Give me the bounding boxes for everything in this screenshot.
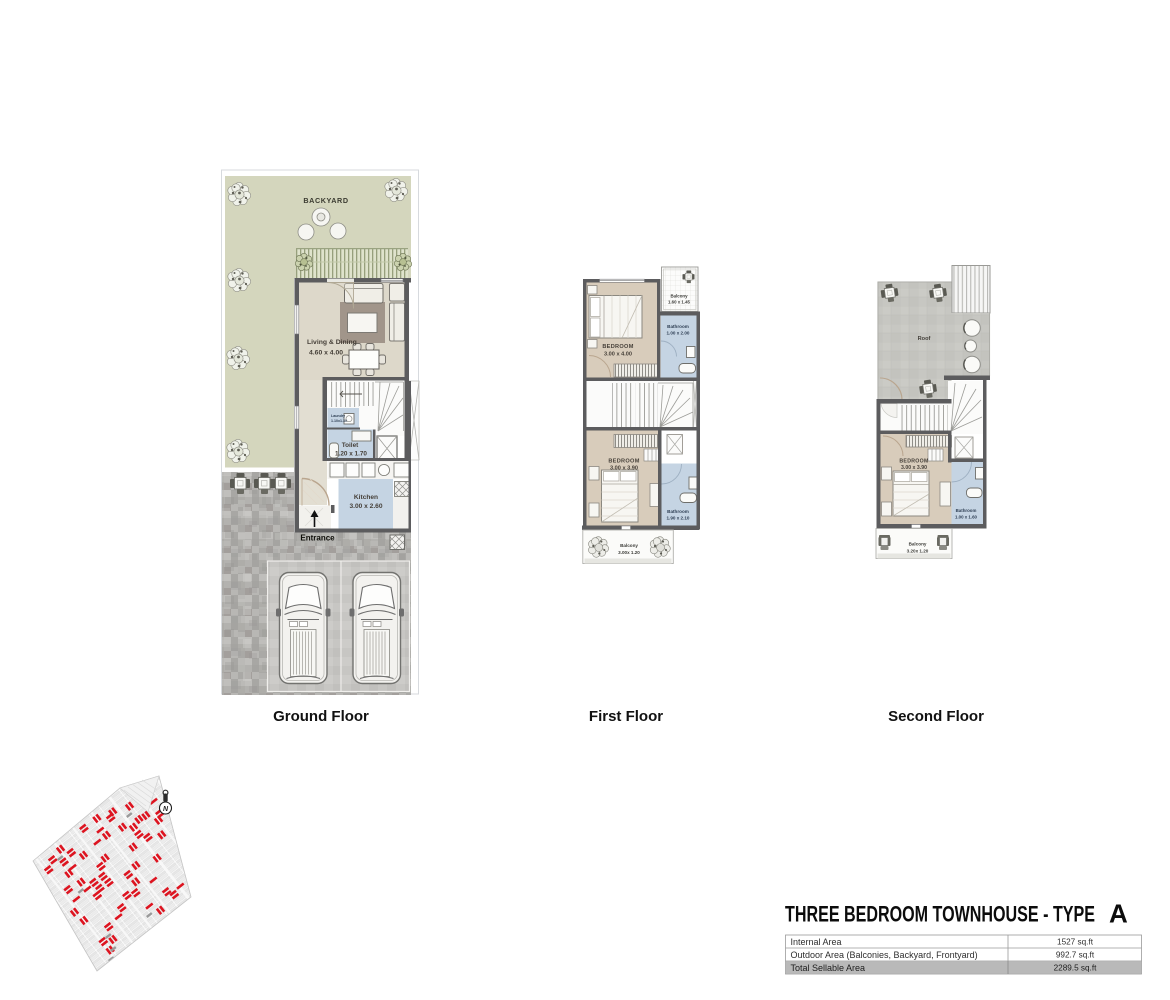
svg-text:First Floor: First Floor <box>589 708 663 725</box>
svg-text:BEDROOM: BEDROOM <box>602 344 633 350</box>
svg-text:1.20 x 1.70: 1.20 x 1.70 <box>335 451 367 458</box>
svg-text:1.60 x 1.45: 1.60 x 1.45 <box>668 300 691 305</box>
svg-text:Internal Area: Internal Area <box>791 937 842 947</box>
svg-text:3.00x 1.20: 3.00x 1.20 <box>618 550 640 555</box>
svg-text:3.00 x 4.00: 3.00 x 4.00 <box>604 352 632 358</box>
svg-text:Balcony: Balcony <box>670 294 688 299</box>
svg-text:THREE BEDROOM TOWNHOUSE - TYPE: THREE BEDROOM TOWNHOUSE - TYPE <box>785 902 1095 927</box>
svg-text:Ground Floor: Ground Floor <box>273 708 369 725</box>
svg-text:2289.5 sq.ft: 2289.5 sq.ft <box>1054 963 1098 972</box>
svg-text:Bathroom: Bathroom <box>956 508 977 513</box>
svg-text:3.00 x 3.90: 3.00 x 3.90 <box>901 465 927 471</box>
svg-text:BACKYARD: BACKYARD <box>303 196 348 205</box>
svg-text:1.00 x 1.60: 1.00 x 1.60 <box>955 515 978 520</box>
svg-text:Roof: Roof <box>918 336 931 342</box>
svg-text:1.10x1.30: 1.10x1.30 <box>331 419 347 423</box>
svg-text:1527 sq.ft: 1527 sq.ft <box>1057 937 1094 946</box>
svg-text:Bathroom: Bathroom <box>667 324 689 329</box>
svg-text:1.90 x 2.10: 1.90 x 2.10 <box>667 516 690 521</box>
svg-text:BEDROOM: BEDROOM <box>899 459 928 465</box>
svg-text:Balcony: Balcony <box>620 543 638 548</box>
svg-text:Second Floor: Second Floor <box>888 708 984 725</box>
svg-text:Total Sellable Area: Total Sellable Area <box>791 963 866 973</box>
svg-text:1.00 x 2.00: 1.00 x 2.00 <box>667 331 690 336</box>
svg-text:Laundry: Laundry <box>331 414 345 418</box>
svg-text:Outdoor Area (Balconies, Backy: Outdoor Area (Balconies, Backyard, Front… <box>791 950 978 960</box>
svg-text:BEDROOM: BEDROOM <box>608 459 639 465</box>
svg-text:992.7 sq.ft: 992.7 sq.ft <box>1056 950 1095 959</box>
svg-text:A: A <box>1109 899 1128 929</box>
svg-text:Kitchen: Kitchen <box>354 494 378 501</box>
svg-text:Balcony: Balcony <box>909 542 927 547</box>
svg-text:Living & Dining: Living & Dining <box>307 339 357 346</box>
svg-text:4.60 x 4.00: 4.60 x 4.00 <box>309 350 343 357</box>
svg-text:Entrance: Entrance <box>300 534 335 543</box>
svg-text:Bathroom: Bathroom <box>667 509 689 514</box>
svg-text:3.00 x 2.60: 3.00 x 2.60 <box>350 503 383 510</box>
svg-text:Toilet: Toilet <box>342 442 359 449</box>
svg-text:3.20x 1.20: 3.20x 1.20 <box>907 549 929 554</box>
